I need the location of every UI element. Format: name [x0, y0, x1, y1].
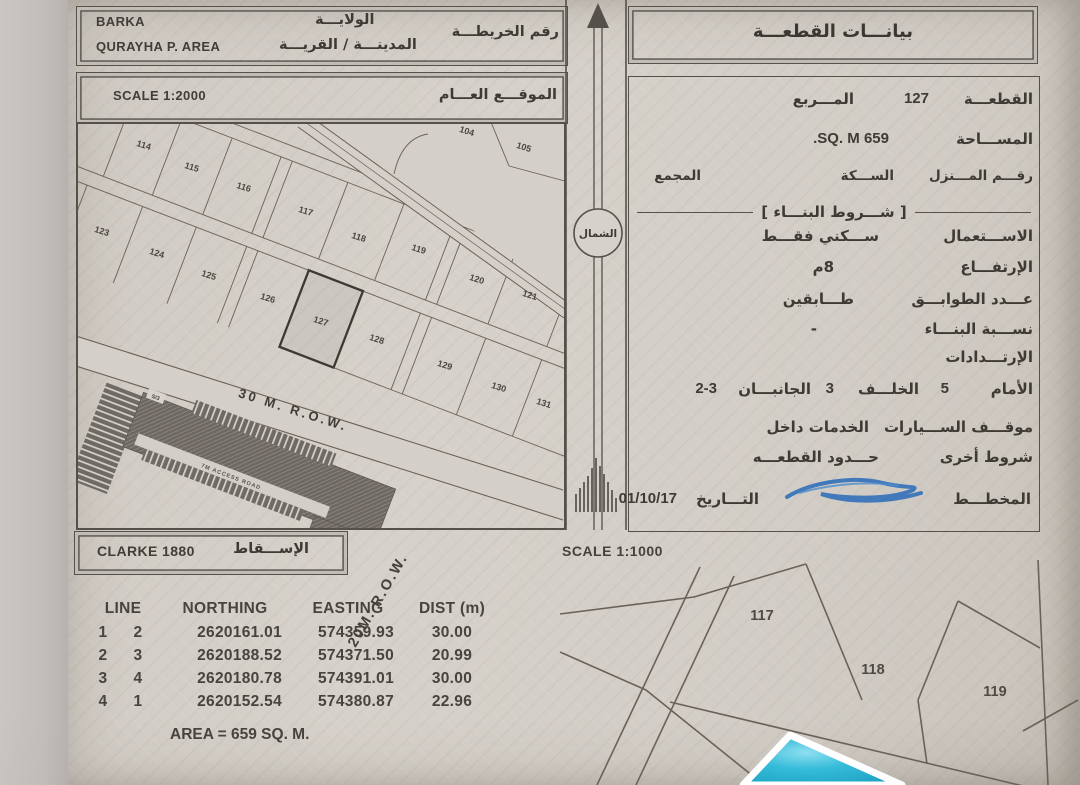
- table-cell: 574359.93: [292, 624, 404, 647]
- use-label: الاســـتعمال: [943, 227, 1033, 245]
- region-label: الولايـــة: [315, 12, 374, 28]
- coords-table-body: 122620161.01574359.9330.00232620188.5257…: [88, 624, 508, 716]
- table-cell: 2620161.01: [158, 624, 292, 647]
- table-row: 232620188.52574371.5020.99: [88, 647, 508, 670]
- table-cell: 574371.50: [292, 647, 404, 670]
- plot-data-title: بيانـــات القطعـــة: [753, 21, 913, 42]
- house-number-label: رقـــم المـــنزل: [929, 168, 1033, 184]
- highlighted-plot: [743, 735, 902, 785]
- header-left-box: BARKA QURAYHA P. AREA الولايـــة المدينـ…: [76, 6, 568, 66]
- back-label: الخلـــف: [858, 380, 919, 398]
- photo-margin: [0, 0, 70, 785]
- front-label: الأمام: [991, 380, 1033, 398]
- building-conditions-divider: شـــروط البنـــاء: [637, 203, 1031, 221]
- block-label: المجمع: [654, 168, 701, 184]
- signature-scribble: [779, 473, 929, 513]
- col-line: LINE: [88, 600, 158, 624]
- table-cell: 22.96: [404, 693, 500, 716]
- north-arrow-icon: الشمال: [574, 3, 622, 530]
- plot-number-label: 120: [468, 272, 485, 286]
- datum-name: CLARKE 1880: [97, 543, 195, 559]
- plot-number-label: 126: [259, 291, 276, 305]
- coordinates-table-header: LINE NORTHING EASTING DIST (m): [88, 600, 508, 624]
- general-location-strip: SCALE 1:2000 الموقـــع العـــام: [76, 72, 568, 124]
- plot-number: 127: [904, 90, 929, 107]
- plot-label: القطعـــة: [964, 90, 1033, 108]
- region-name: BARKA: [96, 14, 145, 29]
- table-row: 412620152.54574380.8722.96: [88, 693, 508, 716]
- tally-bars-icon: [576, 458, 616, 512]
- sketch-plot-labels: 117118119: [750, 608, 1006, 700]
- sides-label: الجانبـــان: [738, 380, 811, 398]
- parking-value: الخدمات داخل: [766, 418, 869, 436]
- area-value: 659 SQ. M.: [813, 130, 889, 147]
- north-label: الشمال: [579, 228, 617, 240]
- back-value: 3: [826, 380, 834, 397]
- plot-number-label: 117: [297, 204, 314, 218]
- table-cell: 2: [88, 647, 118, 670]
- plot-number-label: 131: [535, 396, 552, 410]
- table-cell: 574380.87: [292, 693, 404, 716]
- plot-number-label: 128: [368, 332, 385, 346]
- front-value: 5: [941, 380, 949, 397]
- table-cell: 2620180.78: [158, 670, 292, 693]
- plot-number-label: 118: [861, 662, 884, 678]
- plot-number-label: 124: [148, 246, 165, 260]
- ratio-label: نســـبة البنـــاء: [925, 320, 1033, 338]
- plot-number-label: 123: [93, 224, 110, 238]
- krooki-document: BARKA QURAYHA P. AREA الولايـــة المدينـ…: [0, 0, 1080, 785]
- table-cell: 30.00: [404, 624, 500, 647]
- date-value: 01/10/17: [619, 490, 677, 507]
- parking-label: موقـــف الســـيارات: [884, 418, 1033, 436]
- use-value: ســـكني فقـــط: [762, 227, 879, 245]
- table-cell: 2: [118, 624, 158, 647]
- col-northing: NORTHING: [158, 600, 292, 624]
- table-cell: 1: [118, 693, 158, 716]
- table-cell: 20.99: [404, 647, 500, 670]
- col-dist: DIST (m): [404, 600, 500, 624]
- area-label: المدينـــة / القريـــة: [279, 37, 417, 53]
- height-label: الإرتفـــاع: [960, 258, 1033, 276]
- plot-number-label: 117: [750, 608, 773, 624]
- plot-number-label: 119: [410, 242, 427, 256]
- plot-number-label: 119: [983, 684, 1006, 700]
- setbacks-label: الإرتـــدادات: [945, 348, 1033, 366]
- date-label: التـــاريخ: [696, 490, 759, 508]
- plot-number-label: 130: [490, 380, 507, 394]
- floors-value: طـــابقين: [783, 290, 854, 308]
- general-location-title: الموقـــع العـــام: [439, 87, 557, 103]
- square-label: المـــربع: [793, 90, 854, 108]
- plot-details-box: القطعـــة 127 المـــربع المســـاحة 659 S…: [628, 76, 1040, 532]
- table-row: 342620180.78574391.0130.00: [88, 670, 508, 693]
- plot-number-label: 118: [350, 230, 367, 244]
- plot-number-label: 129: [436, 358, 453, 372]
- table-cell: 3: [88, 670, 118, 693]
- plot-number-label: 115: [183, 160, 200, 174]
- projection-box: CLARKE 1880 الإســـقاط: [74, 531, 348, 575]
- map-number-label: رقم الخريطـــة: [452, 24, 559, 40]
- table-cell: 574391.01: [292, 670, 404, 693]
- table-cell: 1: [88, 624, 118, 647]
- table-cell: 2620152.54: [158, 693, 292, 716]
- projection-label: الإســـقاط: [233, 541, 309, 557]
- sides-value: 2-3: [695, 380, 717, 397]
- building-conditions-title: شـــروط البنـــاء: [753, 203, 914, 221]
- ratio-value: -: [811, 320, 817, 338]
- height-value: 8م: [813, 258, 834, 276]
- table-cell: 4: [118, 670, 158, 693]
- plot-sketch: 117118119: [540, 556, 1080, 785]
- site-map: 30 M. R.O.W. 7M ACCESS ROAD S/3 152 1141…: [76, 122, 566, 530]
- plot-data-title-box: بيانـــات القطعـــة: [628, 6, 1038, 64]
- coordinates-table: LINE NORTHING EASTING DIST (m) 122620161…: [88, 600, 508, 716]
- planner-label: المخطـــط: [953, 490, 1031, 508]
- floors-label: عـــدد الطوابـــق: [911, 290, 1033, 308]
- table-cell: 3: [118, 647, 158, 670]
- site-map-scale: SCALE 1:2000: [113, 88, 206, 103]
- street-label: الســـكة: [841, 168, 894, 184]
- plot-number-label: 116: [235, 180, 252, 194]
- other-conditions-value: حـــدود القطعـــه: [753, 448, 879, 466]
- area-label: المســـاحة: [956, 130, 1033, 148]
- area-name: QURAYHA P. AREA: [96, 39, 220, 54]
- table-row: 122620161.01574359.9330.00: [88, 624, 508, 647]
- table-cell: 30.00: [404, 670, 500, 693]
- other-conditions-label: شروط أخرى: [940, 448, 1033, 466]
- table-cell: 2620188.52: [158, 647, 292, 670]
- plot-number-label: 125: [200, 268, 217, 282]
- col-easting: EASTING: [292, 600, 404, 624]
- north-strip: الشمال: [560, 0, 632, 556]
- plot-number-label: 114: [135, 138, 152, 152]
- area-note: AREA = 659 SQ. M.: [170, 726, 309, 744]
- table-cell: 4: [88, 693, 118, 716]
